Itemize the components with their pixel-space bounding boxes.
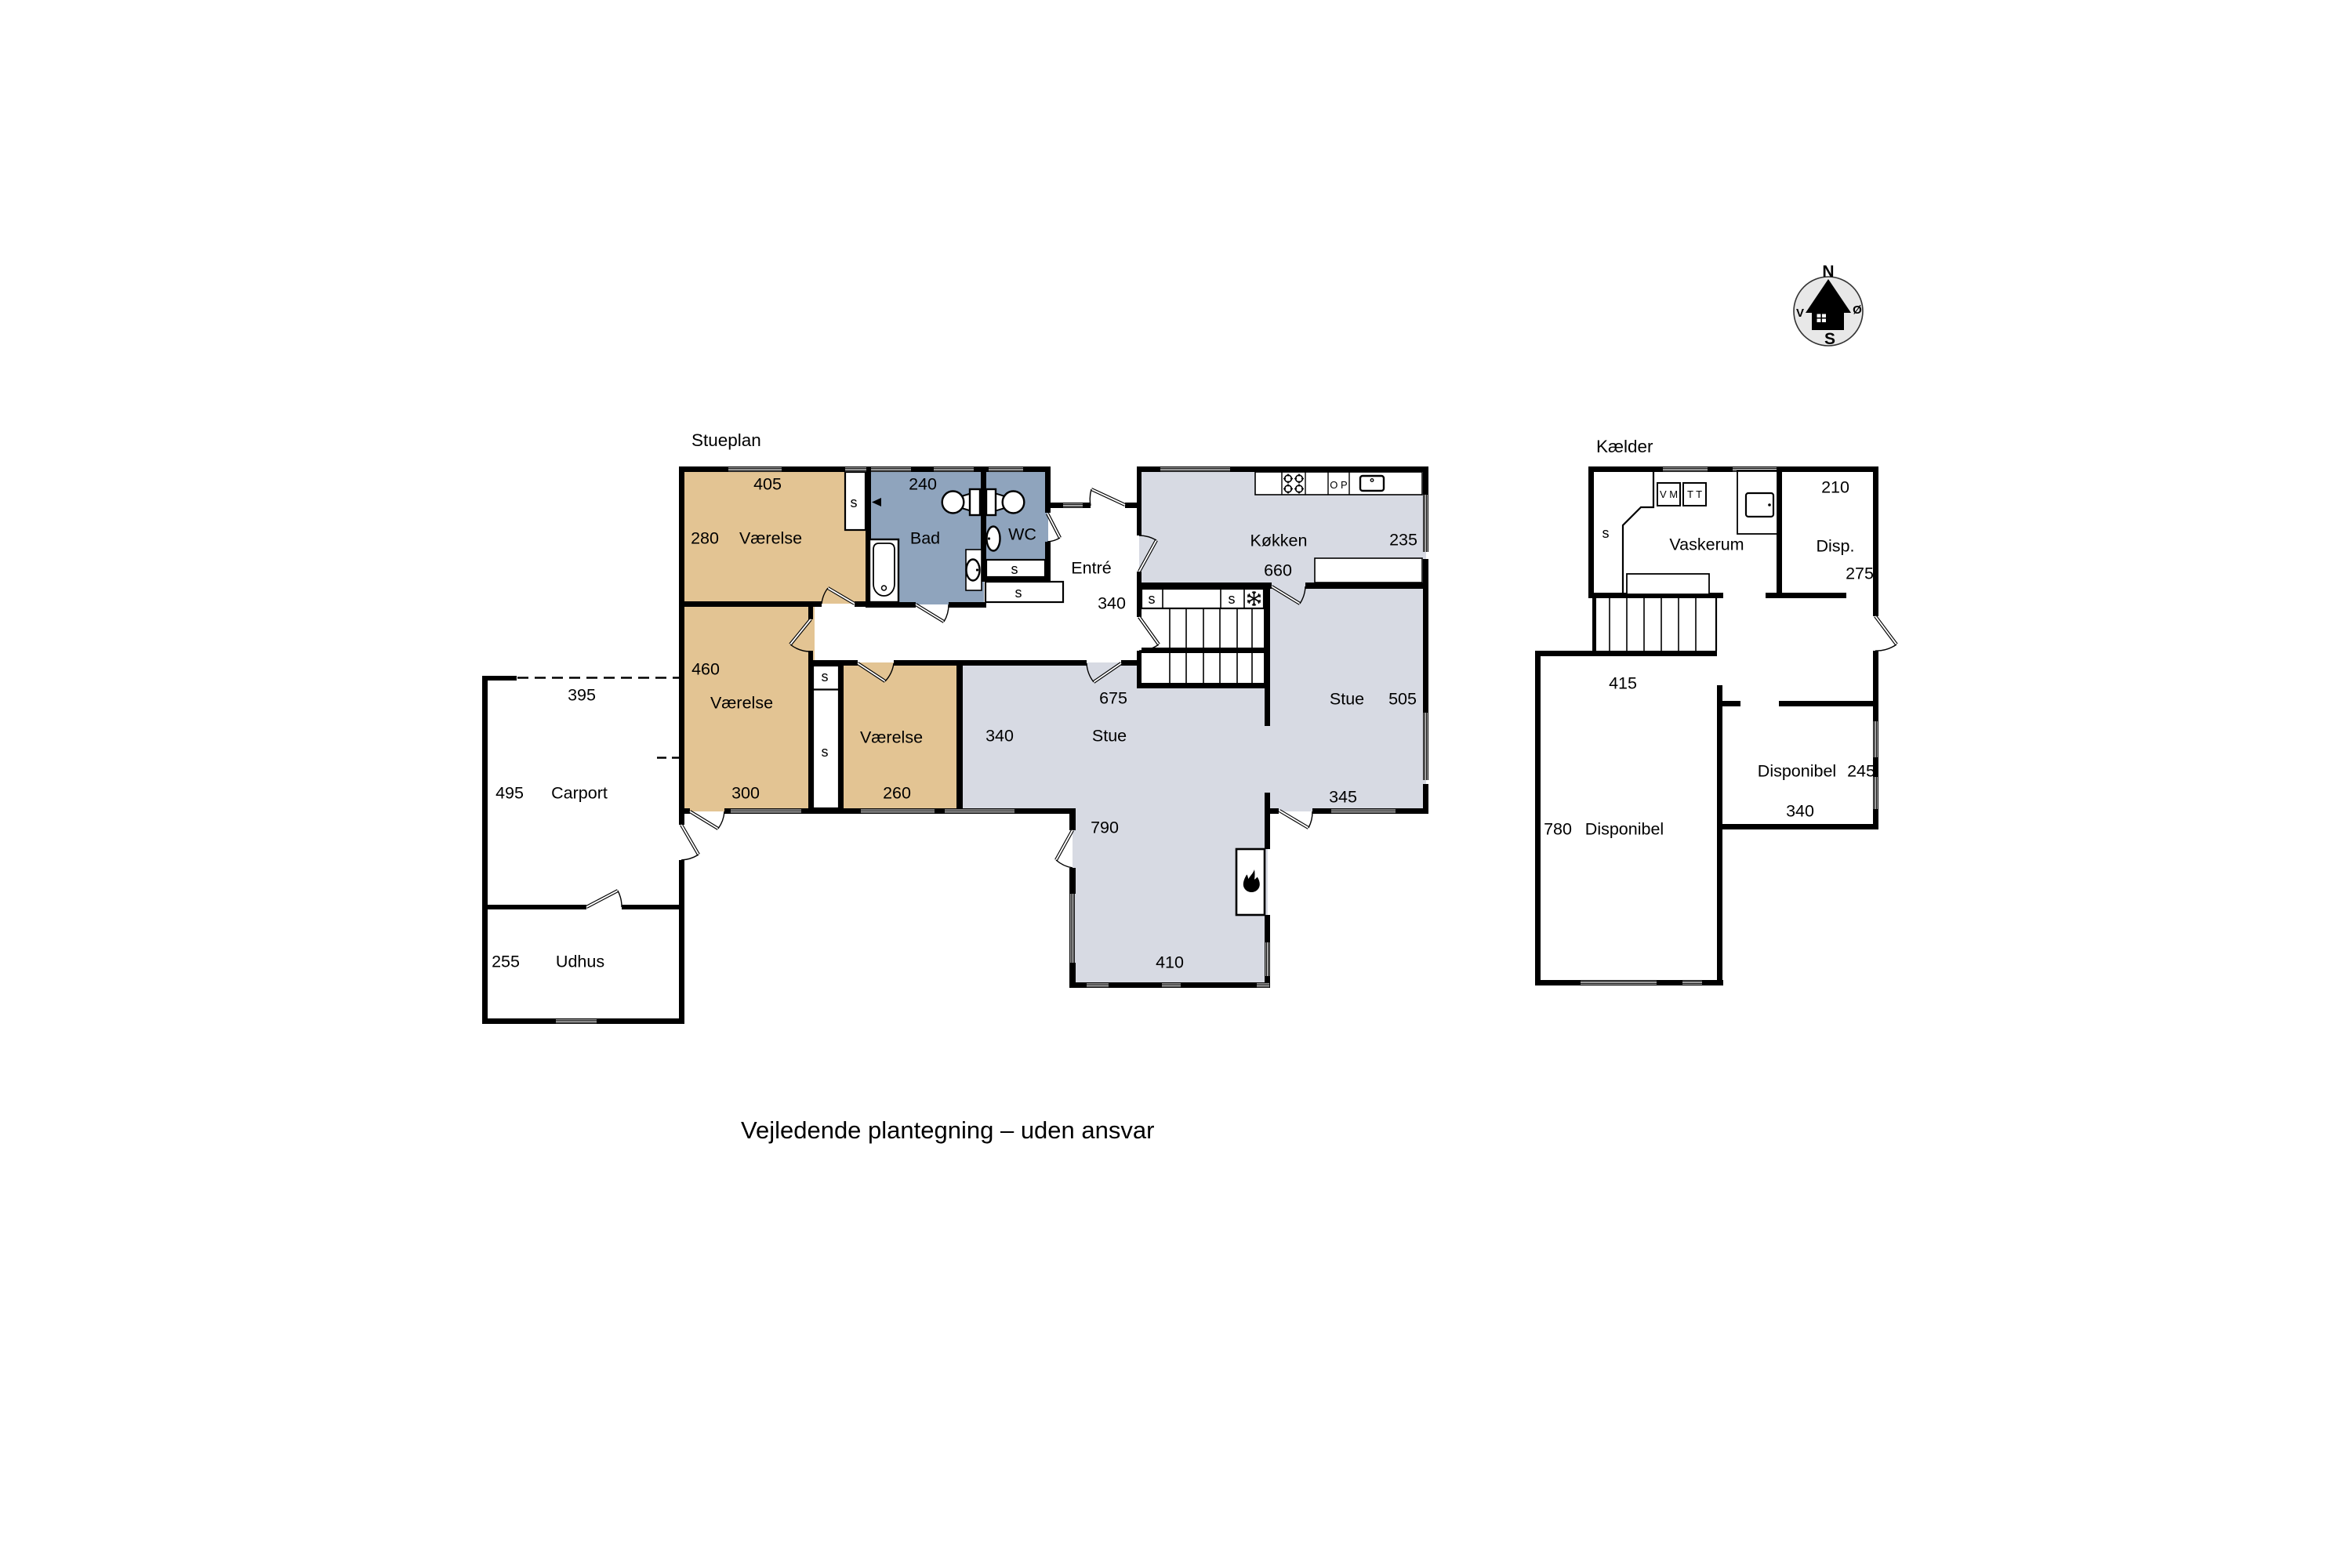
svg-text:Stueplan: Stueplan	[691, 430, 761, 450]
svg-text:s: s	[822, 669, 829, 684]
svg-text:Køkken: Køkken	[1250, 532, 1308, 550]
svg-text:Carport: Carport	[551, 784, 608, 803]
svg-text:s: s	[1015, 585, 1022, 601]
svg-text:340: 340	[1786, 802, 1814, 821]
svg-text:280: 280	[691, 529, 719, 548]
svg-text:240: 240	[909, 475, 937, 494]
svg-text:Værelse: Værelse	[860, 728, 923, 747]
svg-text:O P: O P	[1330, 479, 1347, 491]
svg-text:Disponibel: Disponibel	[1758, 762, 1836, 781]
svg-text:780: 780	[1544, 820, 1572, 839]
svg-text:395: 395	[568, 686, 596, 705]
svg-text:300: 300	[731, 784, 760, 803]
svg-text:Disp.: Disp.	[1817, 537, 1855, 556]
svg-text:Udhus: Udhus	[556, 953, 604, 971]
svg-text:V M: V M	[1660, 488, 1678, 500]
svg-text:675: 675	[1099, 689, 1127, 708]
svg-text:N: N	[1822, 263, 1834, 281]
svg-text:s: s	[851, 495, 858, 510]
svg-text:345: 345	[1329, 788, 1357, 807]
svg-text:415: 415	[1609, 674, 1637, 693]
svg-text:790: 790	[1091, 818, 1119, 837]
svg-text:660: 660	[1264, 561, 1292, 580]
svg-text:Bad: Bad	[910, 529, 940, 548]
svg-text:Ø: Ø	[1853, 303, 1862, 317]
svg-text:245: 245	[1847, 762, 1875, 781]
svg-text:460: 460	[691, 660, 720, 679]
svg-text:Vaskerum: Vaskerum	[1669, 535, 1744, 554]
svg-text:410: 410	[1156, 953, 1184, 972]
svg-text:Stue: Stue	[1092, 727, 1127, 746]
svg-text:235: 235	[1389, 531, 1417, 550]
svg-text:Kælder: Kælder	[1596, 437, 1653, 456]
svg-text:S: S	[1824, 330, 1835, 348]
svg-text:Stue: Stue	[1330, 690, 1364, 709]
svg-text:s: s	[1011, 561, 1018, 577]
svg-text:Værelse: Værelse	[739, 529, 802, 548]
svg-text:340: 340	[1098, 594, 1126, 613]
svg-text:260: 260	[883, 784, 911, 803]
svg-text:Værelse: Værelse	[710, 694, 773, 713]
svg-text:495: 495	[495, 784, 524, 803]
svg-text:275: 275	[1846, 564, 1874, 583]
svg-text:s: s	[1149, 591, 1156, 607]
svg-text:s: s	[1602, 525, 1610, 541]
svg-text:s: s	[822, 744, 829, 760]
svg-text:255: 255	[492, 953, 520, 971]
svg-text:505: 505	[1388, 690, 1417, 709]
svg-text:210: 210	[1821, 478, 1849, 497]
svg-text:405: 405	[753, 475, 782, 494]
svg-text:Vejledende plantegning – uden: Vejledende plantegning – uden ansvar	[741, 1116, 1154, 1144]
svg-text:WC: WC	[1008, 525, 1036, 544]
svg-text:s: s	[1229, 591, 1236, 607]
svg-text:Disponibel: Disponibel	[1585, 820, 1664, 839]
svg-text:Entré: Entré	[1071, 559, 1111, 578]
svg-text:V: V	[1796, 307, 1804, 320]
svg-text:T T: T T	[1687, 488, 1702, 500]
svg-text:340: 340	[985, 727, 1014, 746]
